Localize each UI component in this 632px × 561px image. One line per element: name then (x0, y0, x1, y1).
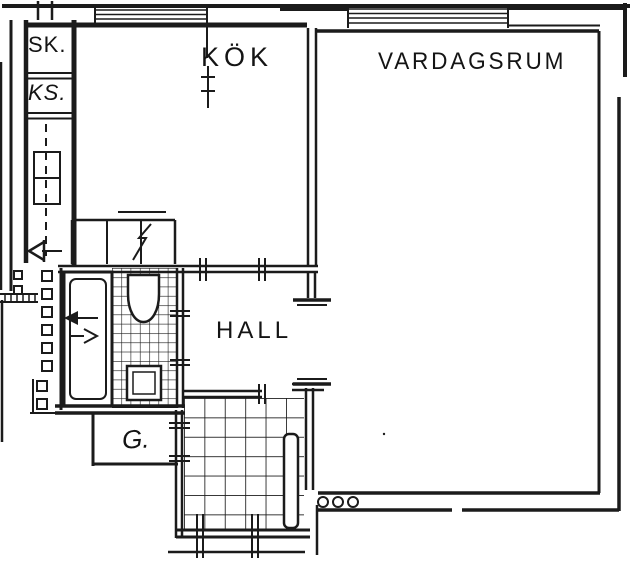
radiator-icon (318, 497, 358, 507)
kitchen-livingroom-wall (308, 28, 316, 265)
kitchen-hall-wall (58, 258, 318, 281)
washbasin-icon (127, 366, 161, 400)
entry-tiled-area (168, 398, 310, 558)
room-label-wardrobe: G. (122, 426, 150, 453)
bathtub-icon (64, 272, 112, 406)
room-label-living-room: VARDAGSRUM (378, 50, 566, 74)
room-label-hall: HALL (216, 319, 292, 343)
kitchen-window-icon (95, 6, 215, 108)
room-label-kitchen: KÖK (201, 44, 273, 71)
floor-plan-drawing (0, 0, 632, 561)
room-label-closet-sk: SK. (28, 34, 66, 56)
room-label-closet-ks: KS. (28, 82, 66, 104)
bathroom (55, 268, 190, 413)
kitchen-counter-icon (72, 212, 175, 264)
toilet-icon (128, 275, 159, 322)
arrow-right-icon (70, 329, 97, 343)
door-leaf-icon (284, 434, 298, 528)
floor-plan: SK. KS. KÖK VARDAGSRUM HALL G. (0, 0, 632, 561)
